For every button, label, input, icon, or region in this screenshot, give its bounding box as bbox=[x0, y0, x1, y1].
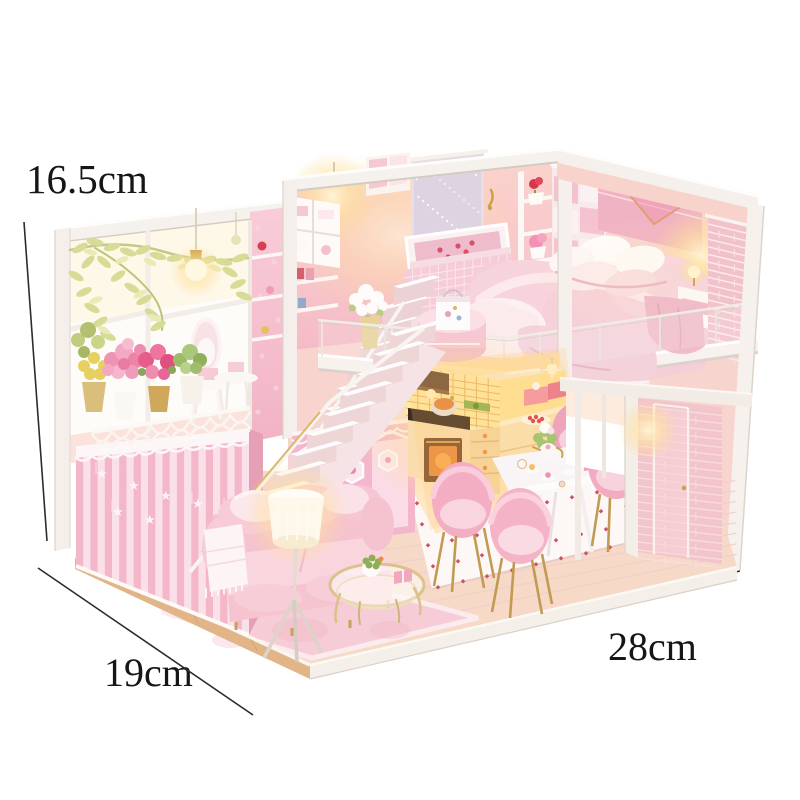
svg-text:★: ★ bbox=[96, 466, 108, 481]
svg-text:★: ★ bbox=[128, 478, 140, 493]
svg-text:19cm: 19cm bbox=[104, 650, 193, 695]
svg-text:★: ★ bbox=[160, 488, 172, 503]
svg-text:28cm: 28cm bbox=[608, 624, 697, 669]
svg-text:16.5cm: 16.5cm bbox=[26, 156, 148, 202]
svg-text:★: ★ bbox=[112, 504, 124, 519]
svg-text:★: ★ bbox=[192, 496, 204, 511]
svg-text:★: ★ bbox=[144, 512, 156, 527]
